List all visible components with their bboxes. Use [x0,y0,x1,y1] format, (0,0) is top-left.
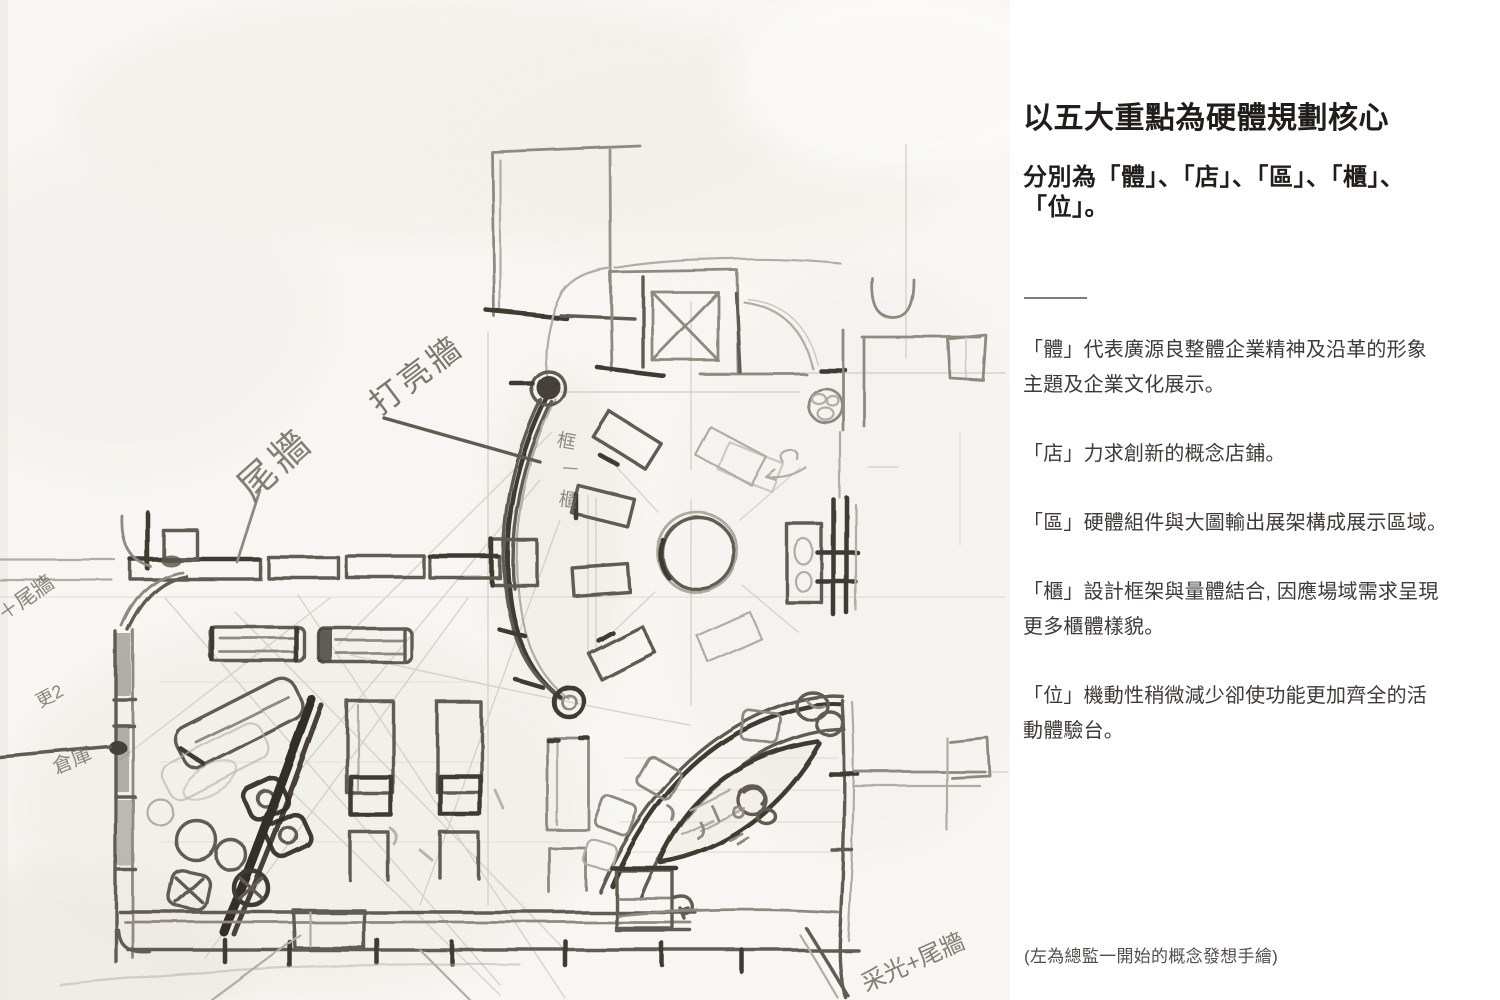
paragraph-line: 「櫃」設計框架與量體結合, 因應場域需求呈現 [1023,575,1462,610]
side-note-char-2: 一 [562,461,579,479]
paragraph-line: 「店」力求創新的概念店鋪。 [1023,437,1462,472]
page: 尾牆 打亮牆 框 一 櫃 ＋尾牆 更2 倉庫 采光+尾牆 以五大重點為硬體規劃核… [0,0,1500,1000]
paragraph-line: 更多櫃體樣貌。 [1023,610,1462,645]
paragraph-line: 「體」代表廣源良整體企業精神及沿革的形象 [1023,333,1462,368]
paragraph-line: 「區」硬體組件與大圖輸出展架構成展示區域。 [1023,506,1462,541]
side-note-char-3: 櫃 [557,488,579,512]
sketch-caption: (左為總監一開始的概念發想手繪) [1024,942,1278,967]
divider-rule [1024,297,1087,299]
paragraph-body-ti: 「體」代表廣源良整體企業精神及沿革的形象 主題及企業文化展示。 [1023,333,1462,403]
page-title: 以五大重點為硬體規劃核心 [1023,0,1462,137]
side-note-char-1: 框 [555,429,578,454]
concept-sketch-photo: 尾牆 打亮牆 框 一 櫃 ＋尾牆 更2 倉庫 采光+尾牆 [0,0,1010,1000]
text-panel: 以五大重點為硬體規劃核心 分別為「體」、「店」、「區」、「櫃」、「位」。 「體」… [1010,0,1500,1000]
paragraph-body-gui: 「櫃」設計框架與量體結合, 因應場域需求呈現 更多櫃體樣貌。 [1023,575,1462,645]
paragraph-line: 「位」機動性稍微減少卻使功能更加齊全的活 [1023,679,1462,714]
concept-sketch-svg: 尾牆 打亮牆 框 一 櫃 ＋尾牆 更2 倉庫 采光+尾牆 [0,0,1010,1000]
paper-texture [0,0,1010,1000]
paragraph-line: 主題及企業文化展示。 [1023,368,1462,403]
paragraph-body-wei: 「位」機動性稍微減少卻使功能更加齊全的活 動體驗台。 [1023,679,1462,749]
page-subtitle: 分別為「體」、「店」、「區」、「櫃」、「位」。 [1023,163,1462,223]
paragraph-body-dian: 「店」力求創新的概念店鋪。 [1023,437,1462,472]
paragraph-body-qu: 「區」硬體組件與大圖輸出展架構成展示區域。 [1023,506,1462,541]
paragraph-line: 動體驗台。 [1023,714,1462,749]
